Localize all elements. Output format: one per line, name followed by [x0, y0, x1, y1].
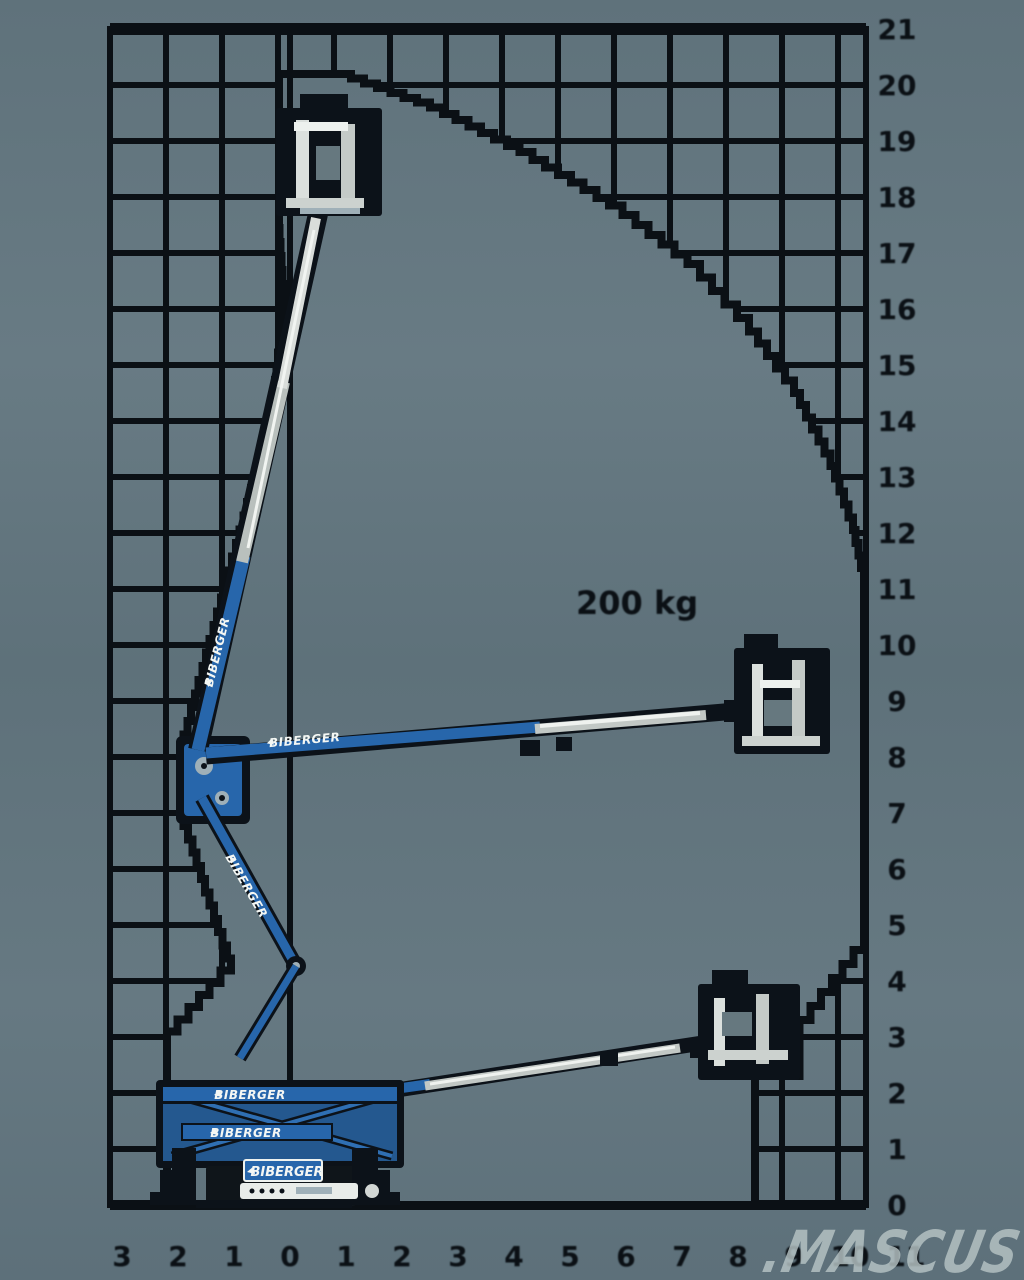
y-axis-tick-label: 9	[887, 685, 906, 718]
platform-basket-top	[276, 94, 382, 216]
y-axis-tick-label: 1	[887, 1133, 906, 1166]
grid-line-horizontal	[110, 23, 866, 35]
y-axis-tick-label: 4	[887, 965, 906, 998]
y-axis-tick-label: 0	[887, 1189, 906, 1222]
x-axis-tick-label: 8	[728, 1240, 747, 1273]
ground-shadow	[196, 1200, 352, 1208]
y-axis-tick-label: 18	[878, 181, 917, 214]
x-axis-tick-label: 4	[504, 1240, 523, 1273]
y-axis-tick-label: 14	[878, 405, 917, 438]
y-axis-tick-label: 20	[878, 69, 917, 102]
y-axis-tick-label: 16	[878, 293, 917, 326]
grid-line-vertical	[107, 26, 113, 1208]
y-axis-tick-label: 10	[878, 629, 917, 662]
x-axis-tick-label: 2	[392, 1240, 411, 1273]
mascus-watermark: .MASCUS	[757, 1219, 1024, 1280]
reach-diagram: BIBERGER BIBERGER	[0, 0, 1024, 1280]
y-axis-tick-label: 12	[878, 517, 917, 550]
brand-label: BIBERGER	[210, 1126, 281, 1140]
y-axis-tick-label: 3	[887, 1021, 906, 1054]
y-axis-tick-label: 15	[878, 349, 917, 382]
grid-line-horizontal	[110, 82, 866, 88]
y-axis-tick-label: 11	[878, 573, 917, 606]
x-axis-tick-label: 6	[616, 1240, 635, 1273]
x-axis-tick-label: 1	[336, 1240, 355, 1273]
brand-label: BIBERGER	[250, 1165, 323, 1180]
y-axis-tick-label: 2	[887, 1077, 906, 1110]
x-axis-tick-label: 2	[168, 1240, 187, 1273]
x-axis-tick-label: 7	[672, 1240, 691, 1273]
y-axis-tick-label: 17	[878, 237, 917, 270]
platform-basket-low	[690, 970, 800, 1080]
watermark-text: .MASCUS	[757, 1219, 1024, 1280]
x-axis-tick-label: 5	[560, 1240, 579, 1273]
y-axis-tick-label: 19	[878, 125, 917, 158]
platform-basket-mid	[724, 634, 830, 754]
x-axis-tick-label: 0	[280, 1240, 299, 1273]
x-axis-tick-label: 1	[224, 1240, 243, 1273]
y-axis-tick-label: 21	[878, 13, 917, 46]
capacity-label: 200 kg	[576, 584, 698, 622]
y-axis-tick-label: 8	[887, 741, 906, 774]
brand-label: BIBERGER	[214, 1088, 285, 1102]
y-axis-tick-label: 13	[878, 461, 917, 494]
y-axis-tick-label: 6	[887, 853, 906, 886]
x-axis-tick-label: 3	[448, 1240, 467, 1273]
x-axis-tick-label: 3	[112, 1240, 131, 1273]
y-axis-tick-label: 7	[887, 797, 906, 830]
y-axis-tick-label: 5	[887, 909, 906, 942]
brand-plate: BIBERGER	[244, 1160, 324, 1181]
